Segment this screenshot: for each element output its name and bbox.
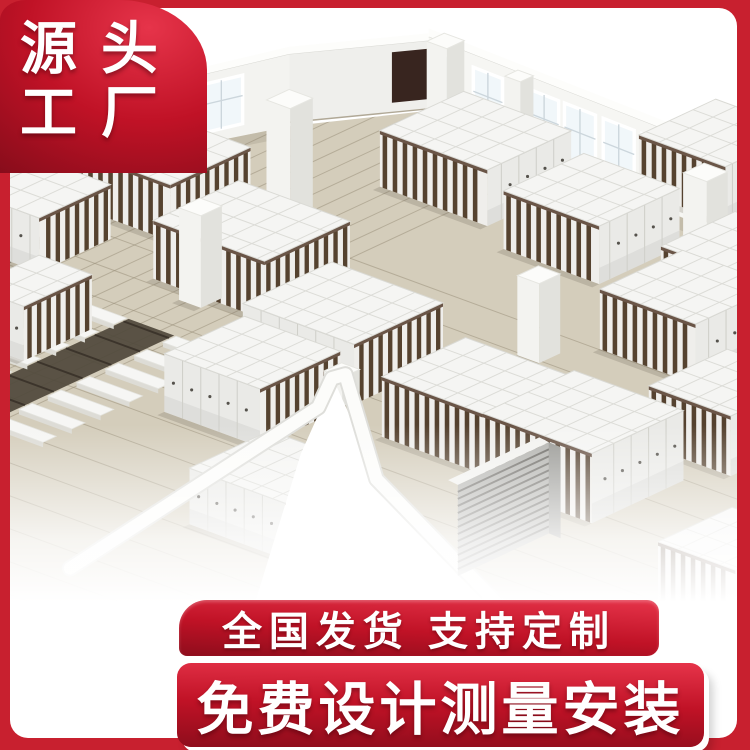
foreground-fade — [10, 425, 737, 633]
carriage-gap — [453, 157, 458, 215]
carriage-gap — [369, 335, 373, 397]
carriage-gap — [506, 192, 511, 252]
carriage-gap — [85, 276, 89, 332]
carriage-gap — [118, 166, 123, 224]
carriage-gap — [463, 161, 468, 219]
lock-dot — [190, 388, 193, 391]
carriage-gap — [94, 190, 98, 246]
carriage-gap — [403, 139, 408, 197]
carriage-gap — [526, 199, 531, 259]
lock-dot — [245, 408, 248, 411]
carriage-gap — [643, 305, 648, 367]
carriage-gap — [75, 280, 79, 336]
pillar — [172, 198, 222, 311]
carriage-gap — [603, 290, 608, 352]
carriage-gap — [47, 294, 51, 350]
carriage-gap — [663, 312, 668, 374]
lock-dot — [617, 242, 620, 245]
carriage-gap — [623, 297, 628, 359]
carriage-gap — [443, 153, 448, 211]
carriage-gap — [633, 301, 638, 363]
lock-dot — [716, 339, 719, 342]
carriage-gap — [413, 142, 418, 200]
carriage-gap — [148, 177, 153, 235]
carriage-gap — [393, 135, 398, 193]
carriage-gap — [65, 204, 69, 260]
carriage-gap — [566, 214, 571, 274]
carriage-gap — [383, 131, 388, 189]
carriage-gap — [653, 308, 658, 370]
carriage-gap — [128, 169, 133, 227]
carriage-gap — [433, 150, 438, 208]
lock-dot — [733, 331, 736, 334]
lock-dot — [509, 183, 512, 186]
carriage-gap — [66, 285, 70, 341]
lock-dot — [172, 382, 175, 385]
carriage-gap — [56, 289, 60, 345]
render-canvas — [10, 8, 737, 738]
pillar-face — [517, 276, 539, 364]
carriage-gap — [27, 303, 31, 359]
carriage-gap — [473, 165, 478, 223]
pillar-face — [201, 206, 222, 308]
carriage-gap — [75, 199, 79, 255]
carriage-gap — [673, 316, 678, 378]
pillar — [510, 266, 560, 367]
carriage-gap — [613, 294, 618, 356]
pillar-face — [179, 208, 201, 308]
carriage-gap — [37, 298, 41, 354]
carriage-gap — [166, 225, 171, 285]
lock-dot — [634, 233, 637, 236]
carriage-gap — [546, 207, 551, 267]
carriage-gap — [586, 221, 591, 281]
carriage-gap — [138, 173, 143, 231]
lock-dot — [19, 234, 22, 237]
carriage-gap — [226, 247, 231, 307]
lock-dot — [526, 175, 529, 178]
carriage-gap — [84, 195, 88, 251]
pillar-face — [539, 274, 560, 363]
lock-dot — [543, 167, 546, 170]
lock-dot — [561, 159, 564, 162]
lock-dot — [652, 225, 655, 228]
carriage-gap — [56, 208, 60, 264]
carriage-gap — [236, 251, 241, 311]
carriage-gap — [536, 203, 541, 263]
carriage-gap — [104, 186, 108, 242]
carriage-gap — [156, 221, 161, 281]
carriage-gap — [423, 146, 428, 204]
carriage-gap — [576, 218, 581, 278]
product-image: { "colors": { "frame_red": "#c8202f", "b… — [0, 0, 750, 750]
carriage-gap — [556, 210, 561, 270]
carriage-gap — [516, 196, 521, 256]
door — [392, 49, 427, 103]
lock-dot — [227, 402, 230, 405]
lock-dot — [208, 395, 211, 398]
lock-dot — [15, 327, 18, 330]
warehouse-render — [10, 8, 737, 633]
lock-dot — [669, 217, 672, 220]
carriage-gap — [359, 340, 363, 402]
